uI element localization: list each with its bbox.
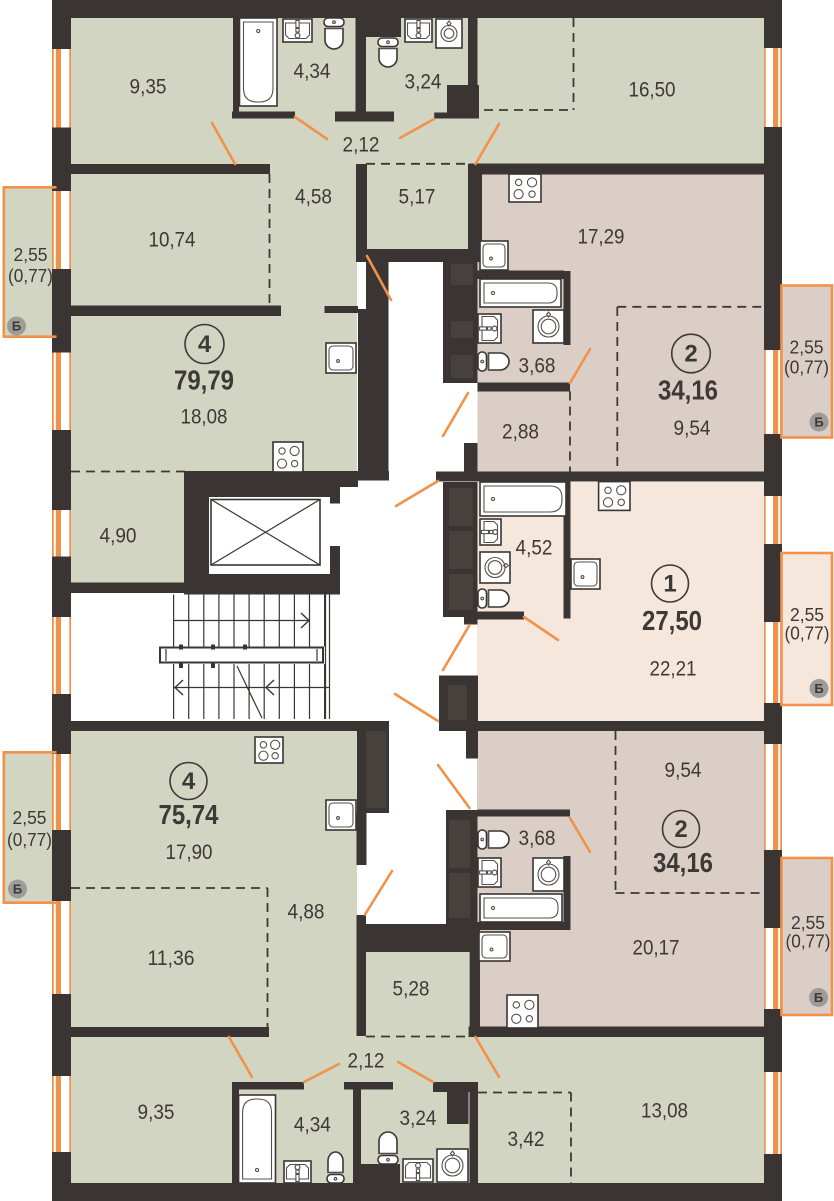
svg-text:(0,77): (0,77) — [8, 266, 53, 286]
svg-text:4: 4 — [198, 331, 212, 358]
svg-text:4,88: 4,88 — [288, 900, 325, 924]
svg-text:2,55: 2,55 — [790, 605, 824, 625]
svg-text:75,74: 75,74 — [159, 799, 220, 830]
svg-text:Б: Б — [12, 319, 21, 334]
svg-text:3,68: 3,68 — [519, 354, 556, 378]
svg-text:18,08: 18,08 — [181, 405, 228, 429]
svg-text:34,16: 34,16 — [653, 847, 713, 878]
svg-text:34,16: 34,16 — [658, 375, 718, 406]
svg-text:20,17: 20,17 — [633, 936, 680, 960]
svg-text:13,08: 13,08 — [641, 1099, 688, 1123]
svg-text:Б: Б — [13, 882, 22, 897]
svg-text:22,21: 22,21 — [650, 657, 697, 681]
svg-text:4,34: 4,34 — [294, 1113, 331, 1137]
svg-text:9,35: 9,35 — [130, 75, 167, 99]
svg-text:2,55: 2,55 — [13, 808, 47, 828]
svg-text:(0,77): (0,77) — [786, 932, 831, 952]
svg-text:Б: Б — [814, 990, 823, 1005]
svg-text:3,24: 3,24 — [405, 70, 442, 94]
svg-text:5,17: 5,17 — [399, 185, 436, 209]
svg-text:4,34: 4,34 — [294, 59, 331, 83]
svg-text:2,55: 2,55 — [790, 338, 824, 358]
svg-text:(0,77): (0,77) — [7, 830, 52, 850]
svg-text:2,12: 2,12 — [348, 1049, 385, 1073]
svg-text:2,88: 2,88 — [502, 420, 539, 444]
svg-text:17,90: 17,90 — [166, 840, 213, 864]
svg-text:5,28: 5,28 — [393, 977, 430, 1001]
svg-text:4,52: 4,52 — [516, 536, 553, 560]
svg-text:2,55: 2,55 — [791, 913, 825, 933]
svg-text:79,79: 79,79 — [174, 365, 234, 396]
svg-text:1: 1 — [663, 571, 676, 598]
svg-text:2: 2 — [674, 816, 687, 843]
svg-text:3,42: 3,42 — [508, 1127, 545, 1151]
svg-text:27,50: 27,50 — [642, 605, 702, 636]
svg-text:Б: Б — [814, 681, 823, 696]
svg-text:9,35: 9,35 — [138, 1100, 175, 1124]
svg-text:3,24: 3,24 — [400, 1106, 437, 1130]
svg-text:(0,77): (0,77) — [785, 624, 830, 644]
svg-text:4: 4 — [182, 768, 196, 795]
svg-text:11,36: 11,36 — [148, 946, 195, 970]
svg-text:17,29: 17,29 — [578, 225, 625, 249]
svg-text:4,58: 4,58 — [295, 185, 332, 209]
svg-text:2,12: 2,12 — [343, 133, 380, 157]
svg-text:9,54: 9,54 — [674, 416, 711, 440]
svg-text:10,74: 10,74 — [149, 228, 196, 252]
svg-text:16,50: 16,50 — [629, 78, 676, 102]
svg-text:(0,77): (0,77) — [784, 358, 829, 378]
svg-text:4,90: 4,90 — [100, 524, 137, 548]
svg-text:2,55: 2,55 — [14, 245, 48, 265]
svg-text:3,68: 3,68 — [519, 826, 556, 850]
svg-text:2: 2 — [684, 341, 697, 368]
svg-text:Б: Б — [814, 415, 823, 430]
svg-text:9,54: 9,54 — [665, 758, 702, 782]
